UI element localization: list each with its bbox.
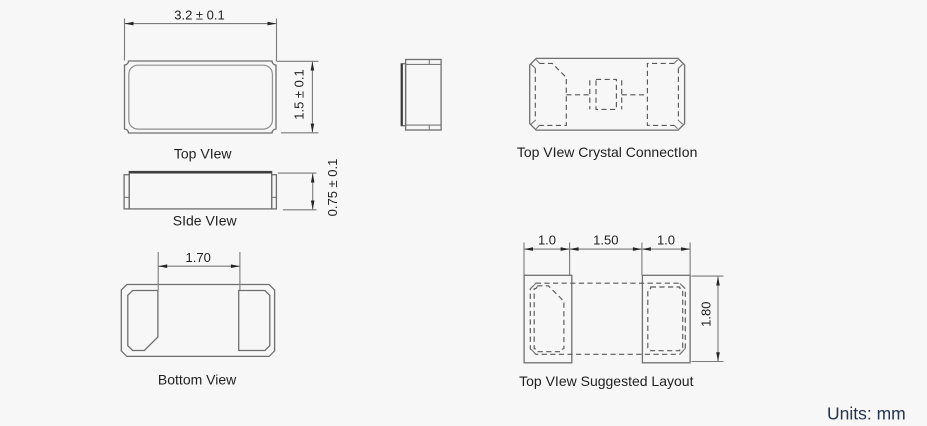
svg-text:Top VIew Crystal ConnectIon: Top VIew Crystal ConnectIon xyxy=(517,144,698,160)
svg-text:Top VIew: Top VIew xyxy=(174,145,232,161)
svg-text:1.0: 1.0 xyxy=(657,232,675,247)
svg-text:1.70: 1.70 xyxy=(186,250,211,265)
svg-text:1.80: 1.80 xyxy=(699,302,714,327)
svg-text:Units: mm: Units: mm xyxy=(827,404,906,424)
svg-text:0.75 ± 0.1: 0.75 ± 0.1 xyxy=(325,159,340,217)
svg-text:1.50: 1.50 xyxy=(593,232,618,247)
svg-text:SIde VIew: SIde VIew xyxy=(173,212,238,228)
svg-text:1.0: 1.0 xyxy=(538,232,556,247)
svg-text:1.5 ± 0.1: 1.5 ± 0.1 xyxy=(292,69,307,120)
svg-text:Top VIew Suggested Layout: Top VIew Suggested Layout xyxy=(519,373,693,389)
svg-text:Bottom View: Bottom View xyxy=(158,371,237,387)
svg-text:3.2 ± 0.1: 3.2 ± 0.1 xyxy=(174,8,225,23)
